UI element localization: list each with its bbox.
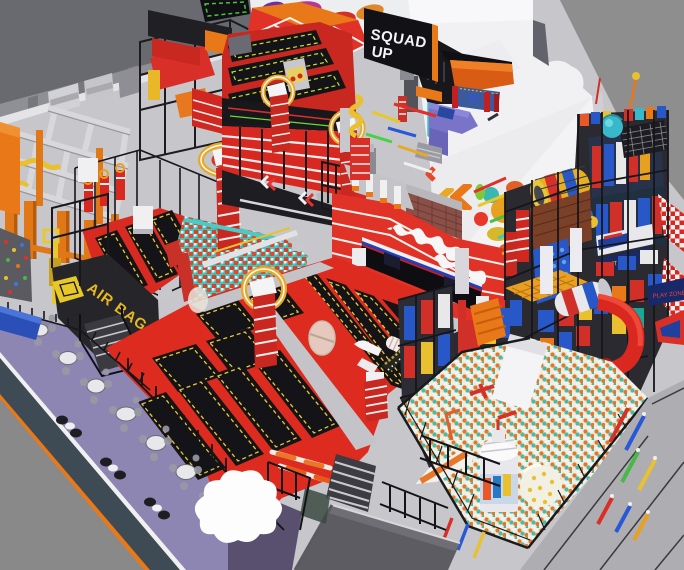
svg-text:UP: UP <box>370 43 393 63</box>
